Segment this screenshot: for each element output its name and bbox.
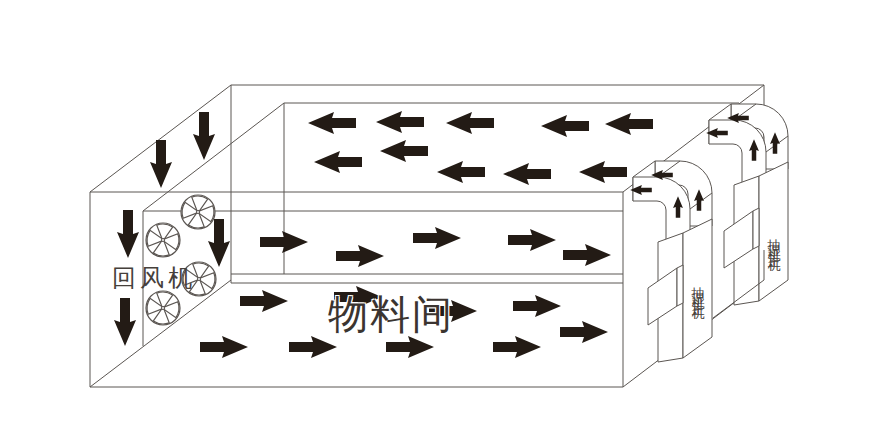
flow-arrow-right xyxy=(413,227,461,249)
flow-arrow-left xyxy=(503,163,551,185)
material-room-label: 物料间 xyxy=(328,295,454,335)
return-fan-icons xyxy=(146,195,216,325)
flow-arrow-right xyxy=(200,336,248,358)
flow-arrow-right xyxy=(386,336,434,358)
flow-arrow-right xyxy=(513,295,561,317)
fan-icon xyxy=(146,223,180,257)
flow-arrow-left xyxy=(380,140,428,162)
dehumidifier-far-label: 抽湿机主机 xyxy=(768,229,781,254)
fan-icon xyxy=(181,195,215,229)
flow-arrow-right xyxy=(563,244,611,266)
flow-arrow-left xyxy=(376,111,424,133)
flow-arrow-left xyxy=(605,113,653,135)
flow-arrow-left xyxy=(314,151,362,173)
drying-room-diagram: 回风机 物料间 抽湿机主机 抽湿机主机 xyxy=(0,0,892,434)
flow-arrow-left xyxy=(579,161,627,183)
diagram-canvas xyxy=(0,0,892,434)
flow-arrow-left xyxy=(437,161,485,183)
flow-arrow-down xyxy=(117,210,139,258)
flow-arrow-right xyxy=(493,336,541,358)
fan-icon xyxy=(146,291,180,325)
flow-arrow-down xyxy=(150,140,172,188)
flow-arrow-left xyxy=(541,115,589,137)
flow-arrow-down xyxy=(208,219,230,267)
flow-arrow-right xyxy=(260,231,308,253)
flow-arrow-right xyxy=(336,245,384,267)
flow-arrow-right xyxy=(560,321,608,343)
flow-arrow-down xyxy=(114,298,136,346)
flow-arrow-down xyxy=(193,112,215,160)
flow-arrow-right xyxy=(508,229,556,251)
dehumidifier-near-label: 抽湿机主机 xyxy=(692,277,705,302)
flow-arrow-left xyxy=(308,112,356,134)
flow-arrow-right xyxy=(240,290,288,312)
return-fan-label: 回风机 xyxy=(112,266,196,290)
flow-arrow-right xyxy=(289,336,337,358)
flow-arrow-left xyxy=(446,112,494,134)
